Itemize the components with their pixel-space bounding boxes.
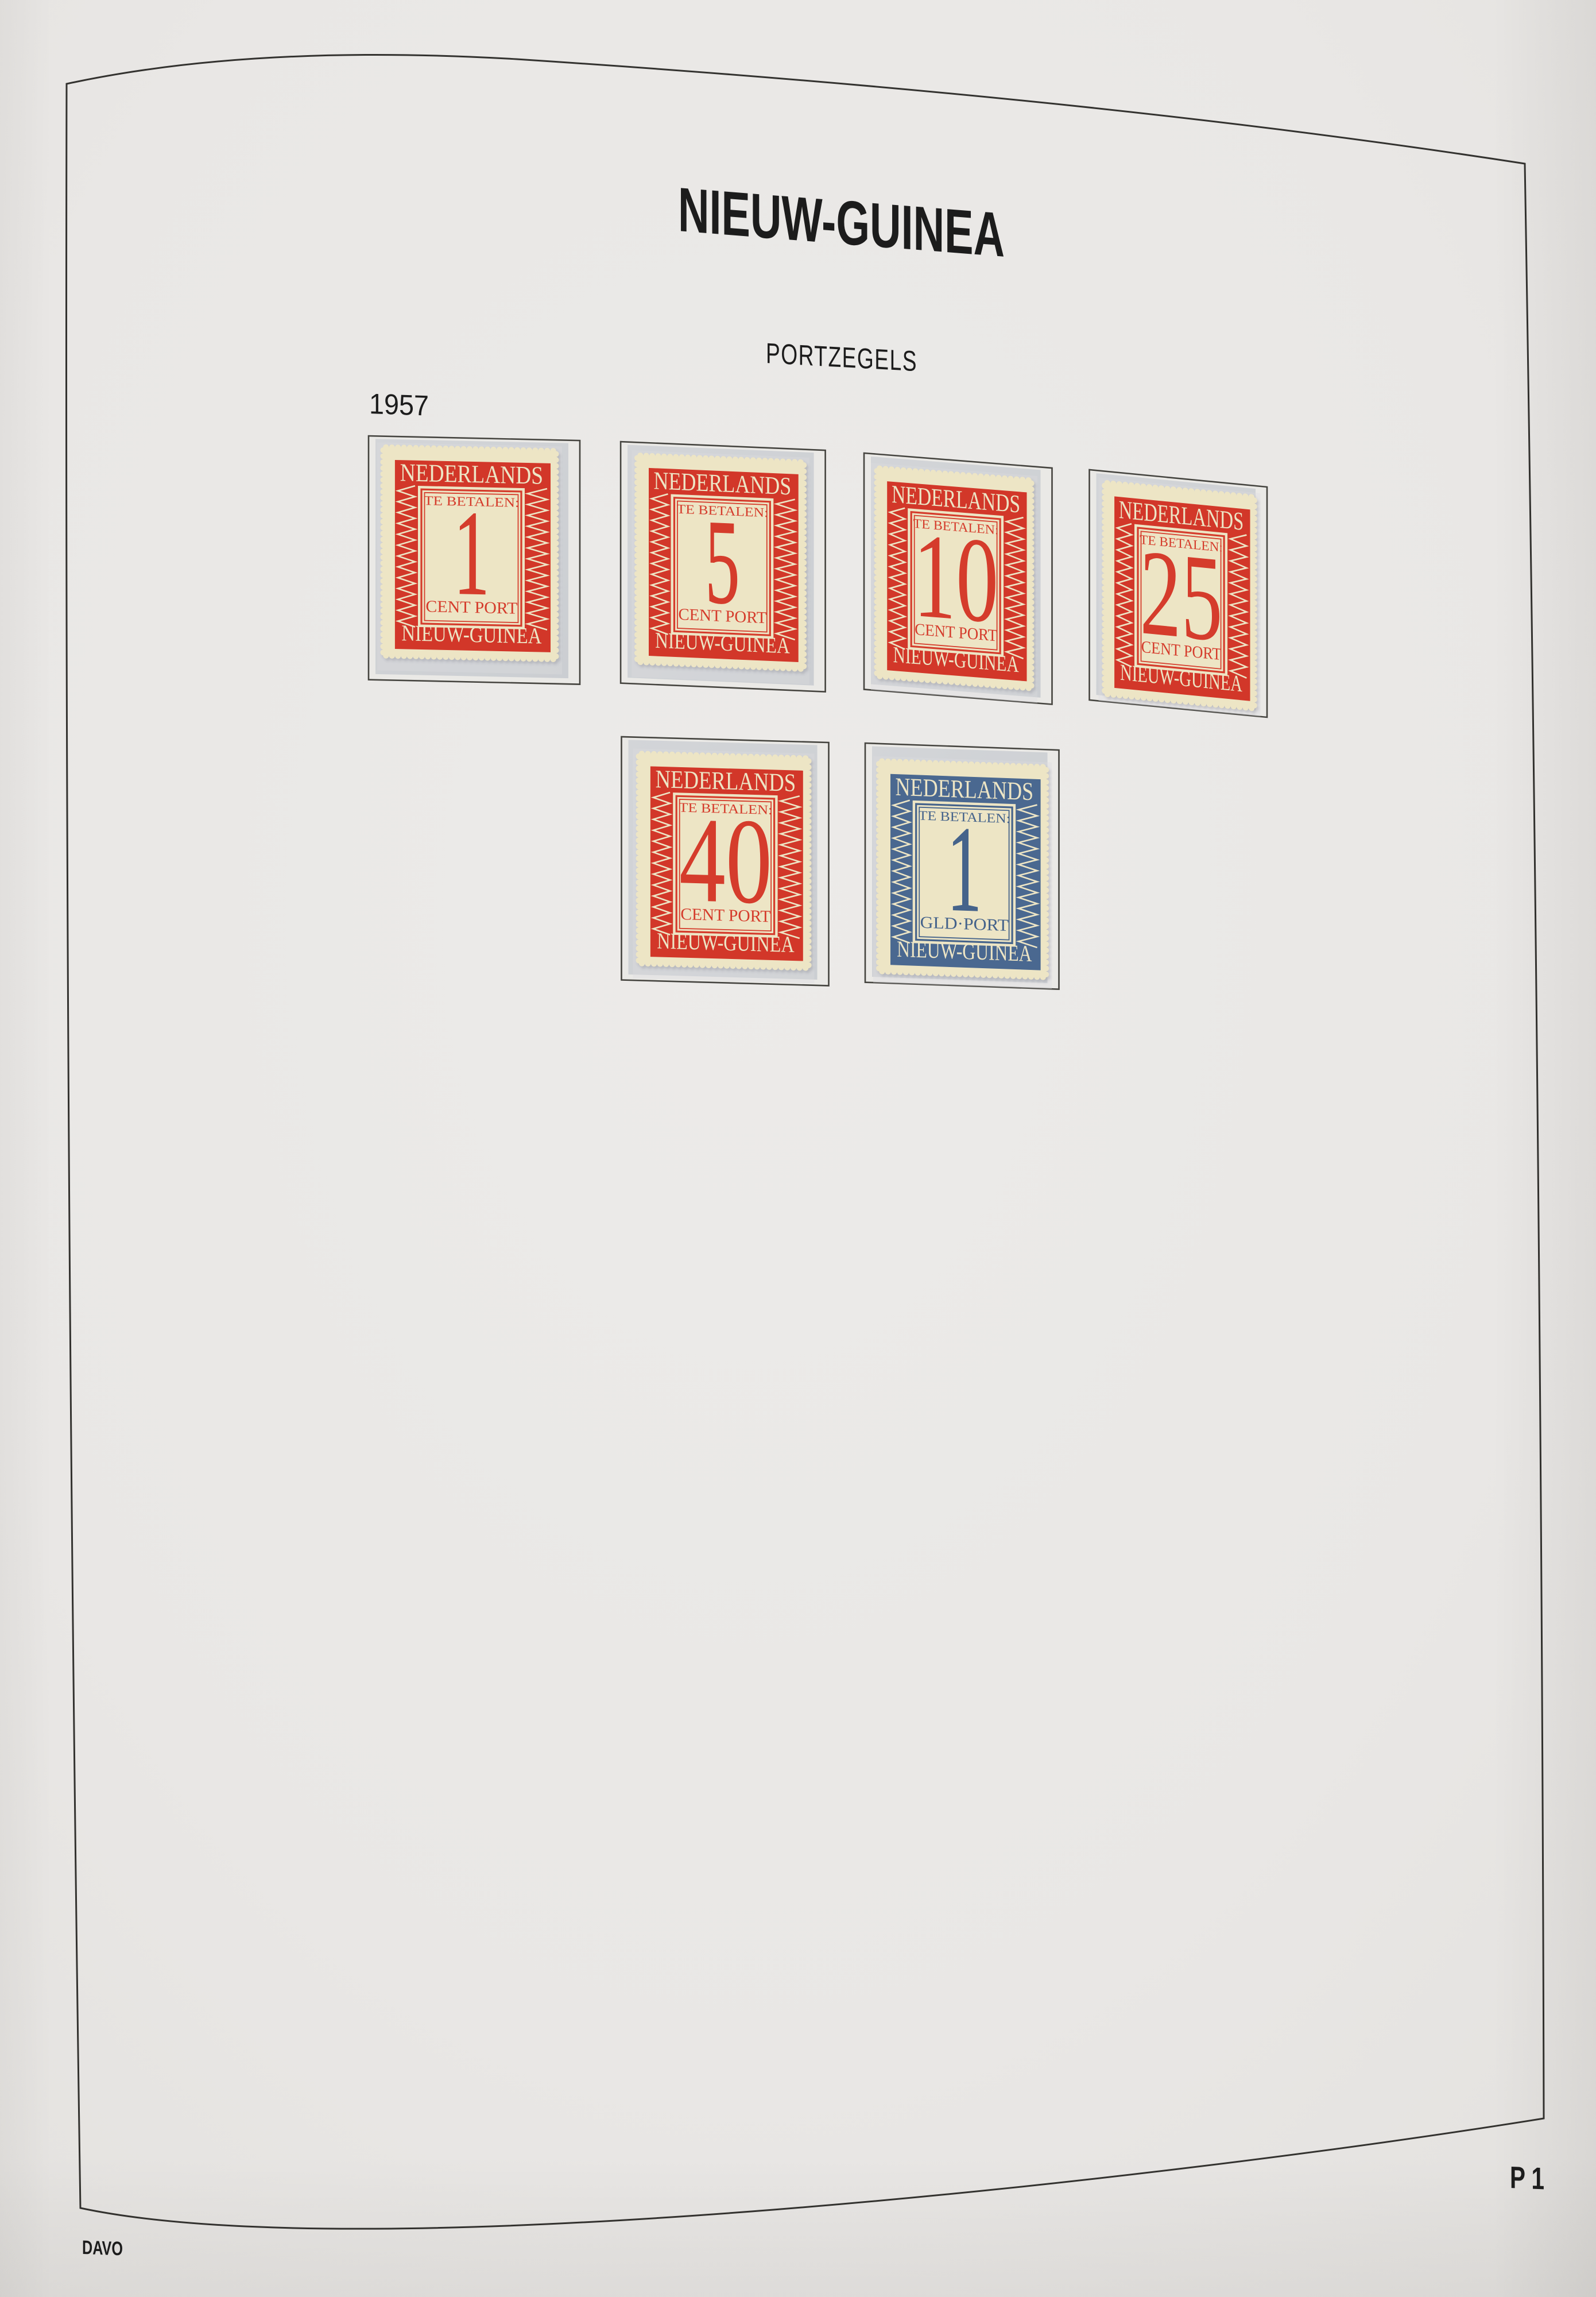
svg-text:NEDERLANDS: NEDERLANDS [656, 764, 796, 797]
svg-text:GLD·PORT: GLD·PORT [920, 914, 1009, 935]
svg-text:DAVO: DAVO [82, 2237, 123, 2260]
svg-text:NIEUW-GUINEA: NIEUW-GUINEA [401, 620, 541, 648]
svg-text:CENT PORT: CENT PORT [678, 605, 766, 627]
svg-text:CENT PORT: CENT PORT [425, 597, 517, 617]
svg-text:CENT PORT: CENT PORT [680, 905, 770, 926]
svg-text:NIEUW-GUINEA: NIEUW-GUINEA [657, 927, 794, 957]
svg-text:NEDERLANDS: NEDERLANDS [400, 458, 543, 489]
svg-text:1957: 1957 [369, 388, 429, 422]
svg-text:NEDERLANDS: NEDERLANDS [896, 772, 1034, 806]
svg-text:P 1: P 1 [1510, 2160, 1544, 2196]
svg-text:NIEUW-GUINEA: NIEUW-GUINEA [897, 936, 1032, 966]
